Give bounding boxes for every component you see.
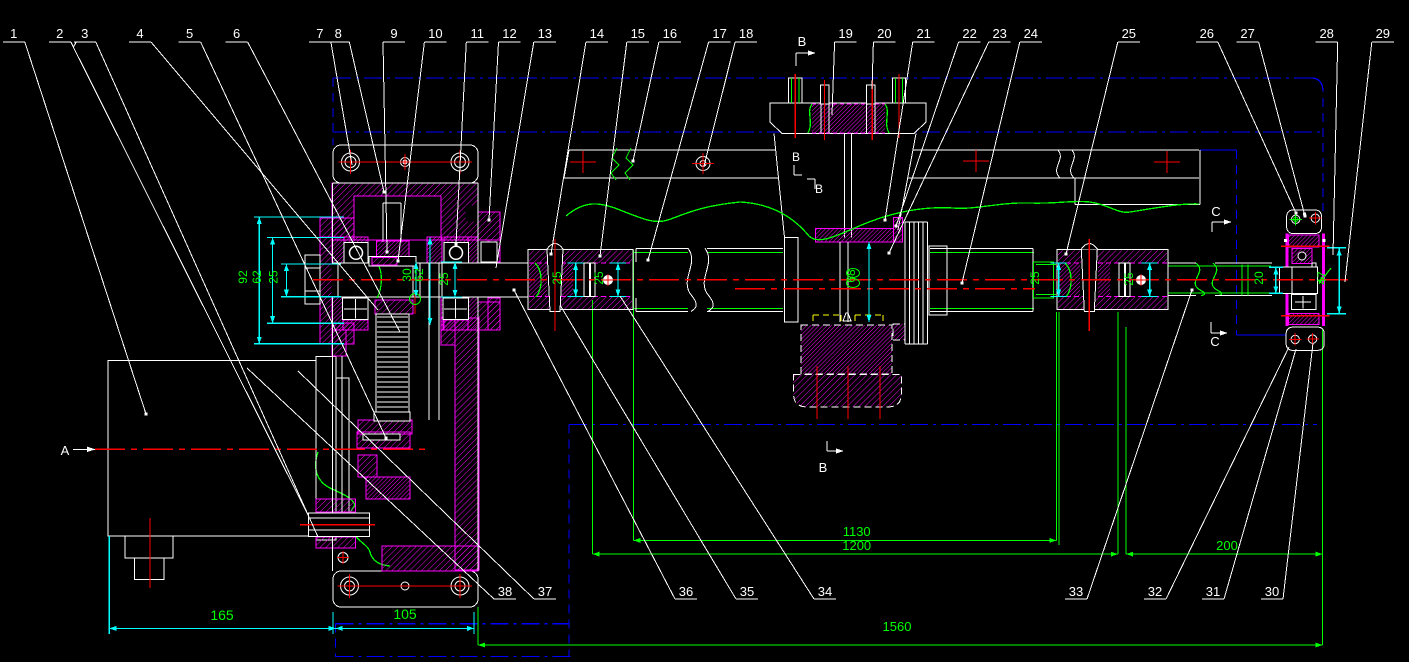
svg-text:200: 200	[1216, 538, 1238, 553]
svg-text:105: 105	[393, 606, 417, 622]
svg-text:26: 26	[1200, 26, 1214, 41]
svg-text:29: 29	[1376, 26, 1390, 41]
svg-text:37: 37	[538, 584, 552, 599]
svg-text:20: 20	[1252, 271, 1266, 285]
svg-text:7: 7	[316, 26, 323, 41]
svg-text:2: 2	[56, 26, 63, 41]
svg-text:25: 25	[1028, 271, 1042, 285]
svg-text:33: 33	[1069, 584, 1083, 599]
svg-text:15: 15	[631, 26, 645, 41]
svg-text:4: 4	[136, 26, 143, 41]
svg-text:25: 25	[1122, 272, 1136, 286]
svg-text:1200: 1200	[842, 538, 871, 553]
svg-text:92: 92	[236, 270, 250, 284]
svg-text:38: 38	[498, 584, 512, 599]
svg-text:1130: 1130	[843, 524, 871, 539]
svg-text:5: 5	[186, 26, 193, 41]
svg-text:16: 16	[663, 26, 677, 41]
svg-text:25: 25	[550, 271, 564, 285]
svg-text:C: C	[1210, 334, 1219, 349]
svg-text:8: 8	[335, 26, 342, 41]
svg-text:9: 9	[390, 26, 397, 41]
svg-text:31: 31	[1206, 584, 1220, 599]
svg-text:25: 25	[1122, 26, 1136, 41]
svg-text:17: 17	[712, 26, 726, 41]
svg-text:165: 165	[210, 607, 234, 623]
svg-text:23: 23	[992, 26, 1006, 41]
svg-text:25: 25	[267, 270, 281, 284]
svg-text:62: 62	[412, 268, 426, 282]
svg-text:32: 32	[1148, 584, 1162, 599]
svg-text:36: 36	[679, 584, 693, 599]
svg-text:20: 20	[877, 26, 891, 41]
svg-text:21: 21	[916, 26, 930, 41]
svg-text:C: C	[1211, 204, 1220, 219]
svg-text:B: B	[798, 34, 807, 49]
svg-text:34: 34	[818, 584, 832, 599]
svg-text:62: 62	[250, 270, 264, 284]
svg-text:3: 3	[81, 26, 88, 41]
svg-text:B: B	[819, 460, 828, 475]
svg-text:25: 25	[437, 272, 451, 286]
svg-text:10: 10	[428, 26, 442, 41]
svg-text:6: 6	[233, 26, 240, 41]
svg-text:13: 13	[538, 26, 552, 41]
svg-text:47: 47	[1315, 271, 1329, 285]
svg-text:35: 35	[740, 584, 754, 599]
svg-text:68: 68	[844, 269, 858, 283]
svg-text:B: B	[815, 182, 823, 196]
svg-text:11: 11	[471, 26, 485, 41]
svg-text:12: 12	[502, 26, 516, 41]
svg-text:14: 14	[590, 26, 604, 41]
svg-text:30: 30	[1265, 584, 1279, 599]
svg-text:B: B	[792, 150, 800, 164]
svg-text:1560: 1560	[883, 619, 912, 634]
svg-text:A: A	[61, 443, 70, 458]
svg-text:1: 1	[10, 26, 17, 41]
svg-text:19: 19	[838, 26, 852, 41]
svg-text:27: 27	[1240, 26, 1254, 41]
svg-text:24: 24	[1024, 26, 1038, 41]
svg-text:18: 18	[739, 26, 753, 41]
svg-text:28: 28	[1319, 26, 1333, 41]
svg-text:22: 22	[962, 26, 976, 41]
